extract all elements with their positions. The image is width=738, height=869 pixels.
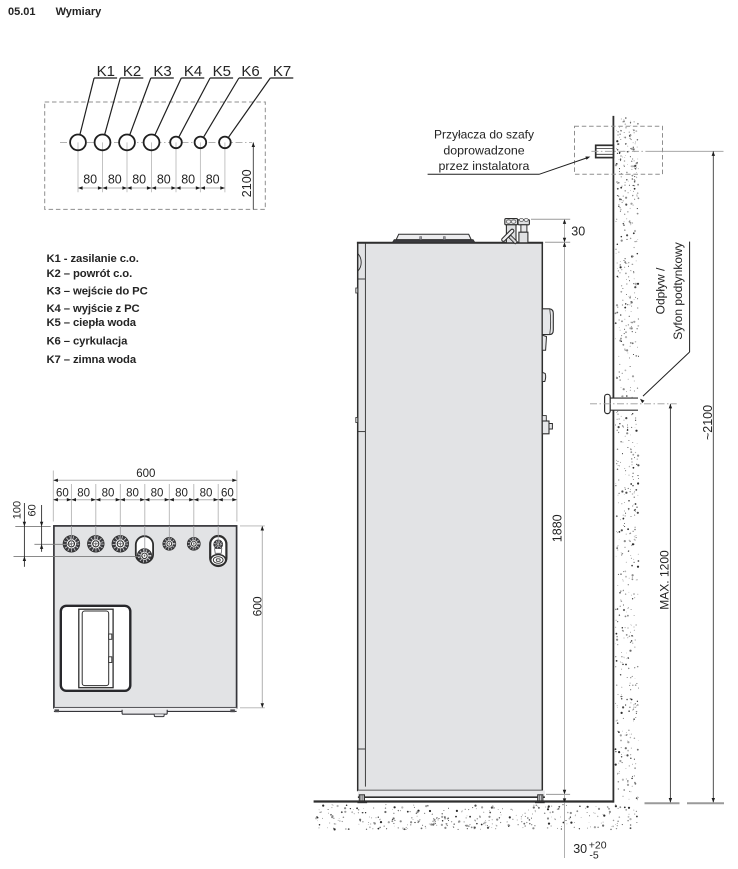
svg-text:1880: 1880	[551, 514, 565, 542]
svg-text:K2: K2	[123, 63, 141, 80]
svg-text:2100: 2100	[240, 169, 254, 197]
svg-text:80: 80	[102, 487, 115, 499]
svg-text:Odpływ /: Odpływ /	[654, 267, 668, 314]
svg-text:Przyłacza do szafy: Przyłacza do szafy	[434, 128, 534, 142]
svg-text:K2 – powrót c.o.: K2 – powrót c.o.	[47, 268, 133, 280]
svg-text:600: 600	[250, 596, 264, 616]
svg-text:K4: K4	[184, 63, 202, 80]
svg-text:K6: K6	[241, 63, 259, 80]
svg-text:80: 80	[151, 487, 164, 499]
svg-text:600: 600	[136, 468, 155, 480]
svg-text:K5 – ciepła woda: K5 – ciepła woda	[47, 317, 137, 329]
svg-text:K7 – zimna woda: K7 – zimna woda	[47, 354, 137, 366]
svg-text:80: 80	[108, 173, 122, 187]
svg-text:K6 – cyrkulacja: K6 – cyrkulacja	[47, 336, 129, 348]
svg-text:K4 – wyjście z PC: K4 – wyjście z PC	[47, 303, 140, 315]
svg-text:doprowadzone: doprowadzone	[443, 143, 524, 157]
svg-text:-5: -5	[589, 850, 598, 862]
svg-text:80: 80	[200, 487, 213, 499]
svg-text:K5: K5	[213, 63, 231, 80]
svg-text:80: 80	[77, 487, 90, 499]
svg-text:K3: K3	[153, 63, 171, 80]
svg-text:80: 80	[206, 173, 220, 187]
svg-text:80: 80	[181, 173, 195, 187]
svg-text:~2100: ~2100	[701, 405, 715, 440]
svg-text:MAX. 1200: MAX. 1200	[658, 550, 672, 610]
svg-text:05.01: 05.01	[8, 6, 36, 18]
svg-text:K3 – wejście do PC: K3 – wejście do PC	[47, 285, 148, 297]
svg-text:60: 60	[26, 504, 38, 516]
svg-text:80: 80	[157, 173, 171, 187]
svg-text:Wymiary: Wymiary	[56, 6, 103, 18]
svg-text:30: 30	[573, 842, 587, 856]
svg-text:Syfon podtynkowy: Syfon podtynkowy	[671, 242, 685, 339]
svg-text:80: 80	[126, 487, 139, 499]
svg-text:80: 80	[83, 173, 97, 187]
svg-text:60: 60	[221, 487, 234, 499]
svg-text:80: 80	[132, 173, 146, 187]
svg-text:60: 60	[56, 487, 69, 499]
svg-text:K1: K1	[97, 63, 115, 80]
svg-text:K1 - zasilanie c.o.: K1 - zasilanie c.o.	[47, 253, 139, 265]
svg-text:K7: K7	[273, 63, 291, 80]
svg-text:30: 30	[571, 224, 585, 238]
svg-text:100: 100	[12, 501, 24, 519]
svg-text:80: 80	[175, 487, 188, 499]
svg-text:przez instalatora: przez instalatora	[439, 159, 530, 173]
